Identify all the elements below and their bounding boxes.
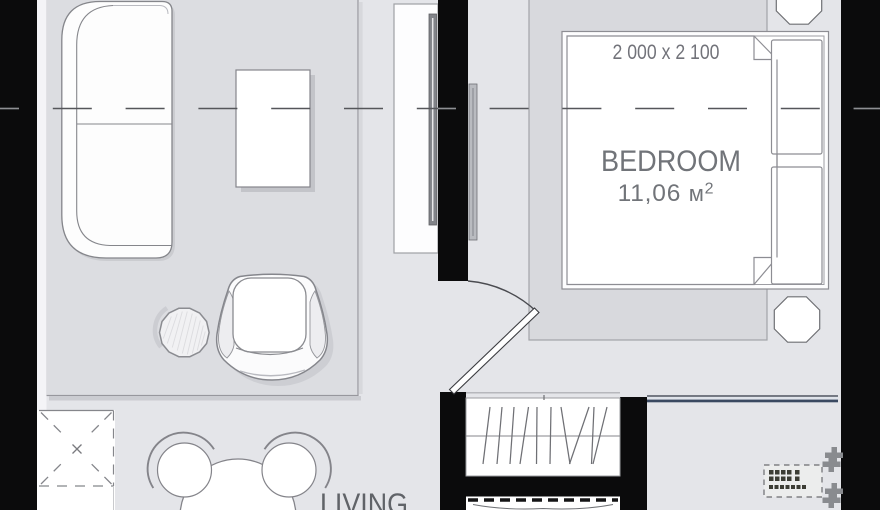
svg-text:LIVING: LIVING (320, 488, 408, 510)
svg-text:11,06 м2: 11,06 м2 (618, 180, 715, 207)
svg-text:2 000 x 2 100: 2 000 x 2 100 (613, 41, 720, 64)
svg-text:BEDROOM: BEDROOM (601, 145, 741, 178)
